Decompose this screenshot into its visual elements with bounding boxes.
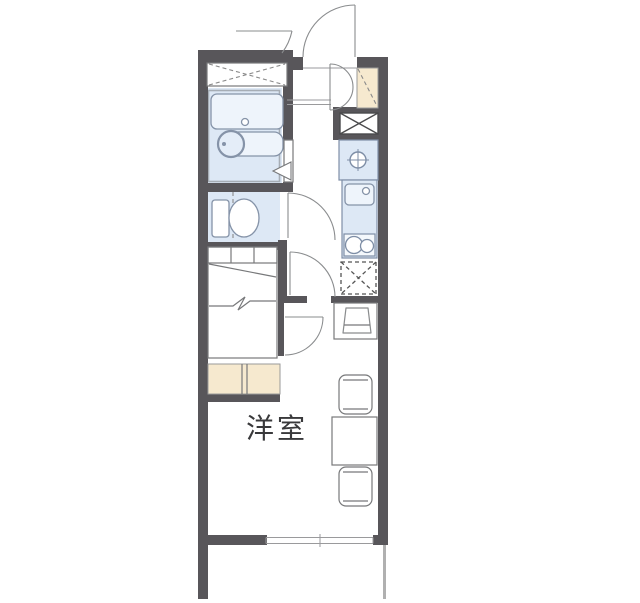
window-balcony [266,534,386,599]
room-label: 洋室 [246,412,308,445]
wall-right [378,57,388,545]
main-room-furniture [332,303,377,506]
wall-bed-nook-east [278,302,284,356]
bed-nook-door-arc [285,317,323,355]
kitchen-sink [345,184,374,205]
shoe-cabinet-door-arc [330,87,353,110]
wall-left [198,50,208,599]
toilet-tank [212,200,229,237]
wall-bottom-left [198,535,267,545]
balcony-rail [383,545,386,599]
toilet-bowl [229,199,259,237]
wall-room-doorway-east [331,296,378,303]
dining-table [332,417,377,465]
under-bed-shelf [208,364,280,394]
toilet-door-arc [288,193,335,240]
upper-storage-shelf [207,63,287,86]
floor-plan: 洋室 [0,0,640,599]
floor-plan-drawing: 洋室 [0,0,640,599]
wall-corridor-mid [283,182,293,192]
wall-bath-toilet [198,183,287,192]
wall-bottom-right [373,535,388,545]
washbasin-faucet [222,142,226,146]
room-door-arc [290,252,335,297]
kitchen-strip [330,64,378,294]
dining-chair [339,375,372,414]
entrance-door-arc [303,5,355,57]
bathtub-drain [242,119,249,126]
sink-drain [363,188,370,195]
wall-corridor-lower [278,240,287,302]
bed-nook [208,247,323,394]
wall-pipe-space-left [333,107,340,140]
wall-segment [285,57,303,70]
exterior-compartment-door-arc [282,31,292,53]
hallway-doors [290,252,335,297]
shoe-cabinet-door-arc [330,64,353,87]
desk-chair [343,308,371,333]
stove-burner [361,240,374,253]
wall-room-doorway-west [284,296,307,303]
dining-chair [339,467,372,506]
washbasin [218,131,244,157]
